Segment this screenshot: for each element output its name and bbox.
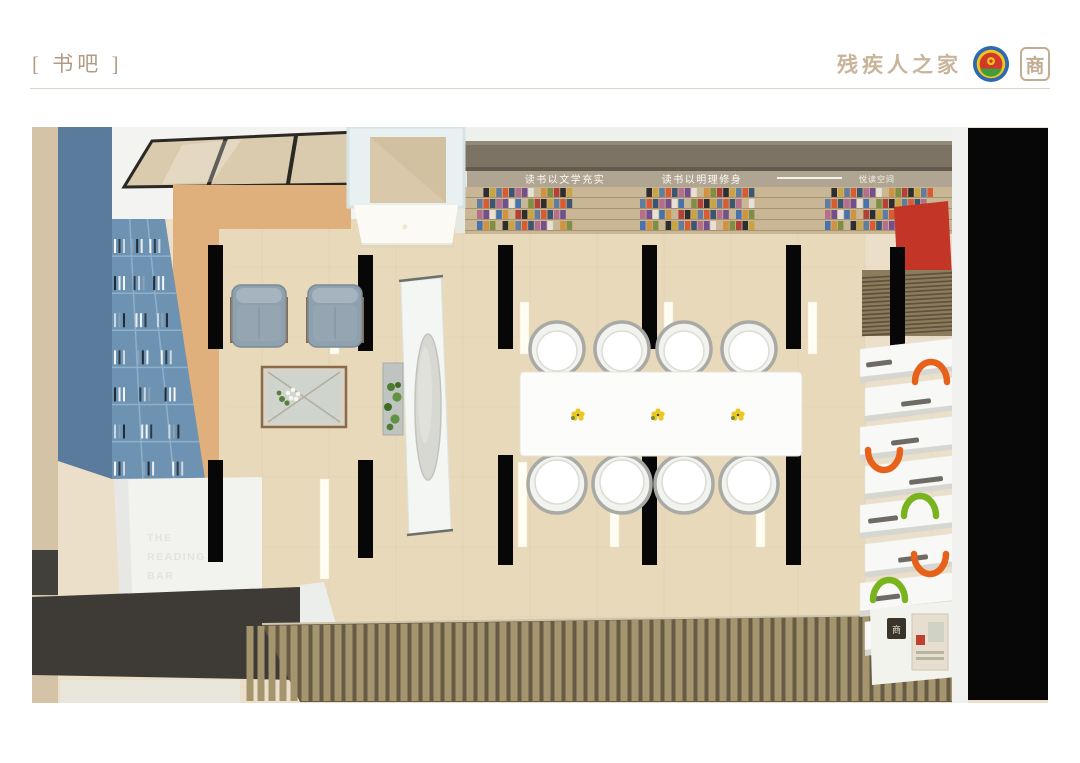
brand-block: 残疾人之家 商: [837, 40, 1050, 88]
coffee-table: [262, 367, 346, 427]
presentation-slide: { "header": { "title": "[ 书吧 ]", "brand_…: [0, 0, 1080, 763]
header-rule: [30, 88, 1050, 89]
right-black-band: [968, 128, 1048, 700]
ceiling-bulkhead: [348, 127, 464, 248]
qr-panel: 商: [870, 601, 956, 685]
bookshelf-beam: [455, 141, 965, 171]
shelf-slogan-small: 悦读空间: [859, 174, 895, 184]
brand-seal: 商: [1020, 47, 1050, 81]
shelf-slogan-right: 读书以明理修身: [662, 173, 743, 186]
page-title: [ 书吧 ]: [32, 48, 123, 78]
room-render: 读书以文学充实 读书以明理修身 悦读空间 THE READING BAR: [32, 127, 1048, 703]
emblem-logo-icon: [972, 45, 1010, 83]
svg-text:商: 商: [892, 624, 901, 635]
armchair: [230, 285, 288, 347]
slide-header: [ 书吧 ] 残疾人之家 商: [30, 40, 1050, 88]
armchair: [306, 285, 364, 347]
wall-text-line2: READING: [147, 551, 206, 563]
blue-bookshelf-face: [58, 127, 112, 479]
shelf-slogan-left: 读书以文学充实: [525, 173, 606, 186]
wall-text-line1: THE: [147, 532, 173, 544]
brand-text: 残疾人之家: [837, 49, 962, 79]
wall-text-line3: BAR: [147, 570, 174, 582]
